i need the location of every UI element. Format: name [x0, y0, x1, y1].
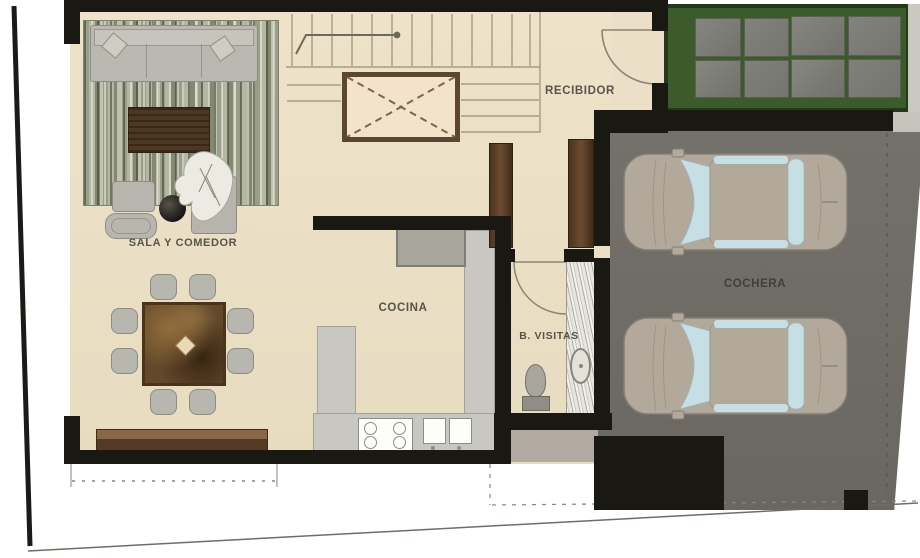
sofa-seat-divider: [201, 44, 202, 78]
paver-tile: [695, 18, 741, 57]
room-label-cocina: COCINA: [357, 302, 449, 314]
wall-segment: [660, 110, 893, 131]
entry-step: [505, 430, 598, 462]
elevator-shaft: [342, 72, 460, 142]
dining-chair: [111, 348, 138, 374]
shaft-x-marks: [347, 77, 455, 137]
burner: [364, 436, 377, 449]
dining-table: [142, 302, 226, 386]
dining-chair: [189, 274, 216, 300]
paver-tile: [791, 16, 845, 56]
wall-segment: [652, 0, 668, 31]
wall-segment: [494, 413, 511, 464]
paver-tile: [848, 59, 902, 99]
wall-segment: [495, 413, 612, 430]
garage-door-opening: [594, 246, 610, 258]
wall-segment: [844, 490, 868, 510]
wall-segment: [594, 436, 724, 510]
sofa: [90, 25, 258, 82]
kitchen-sink-basin: [423, 418, 446, 444]
paver-group: [791, 16, 901, 98]
toilet: [522, 364, 550, 412]
stove: [358, 418, 413, 451]
vanity-sink: [570, 348, 591, 384]
chaise-cushion: [111, 218, 151, 234]
paver-group: [695, 18, 789, 98]
kitchen-counter-left: [317, 326, 356, 415]
refrigerator: [396, 227, 466, 267]
paver-tile: [744, 60, 790, 99]
dining-chair: [227, 308, 254, 334]
armchair: [112, 181, 155, 212]
wall-segment: [64, 0, 80, 44]
room-label-bano-visitas: B. VISITAS: [502, 330, 596, 342]
sofa-seat-divider: [146, 44, 147, 78]
kitchen-sink-basin: [449, 418, 472, 444]
armchair: [191, 176, 237, 234]
paver-tile: [744, 18, 790, 57]
table-centerpiece: [175, 335, 196, 356]
burner: [393, 436, 406, 449]
room-label-cochera: COCHERA: [708, 278, 802, 290]
side-pouf: [159, 195, 186, 222]
burner: [364, 422, 377, 435]
sink-drain: [579, 364, 583, 368]
lawn-right-strip: [908, 4, 920, 112]
toilet-bowl: [525, 364, 546, 397]
wall-segment: [495, 249, 515, 262]
wall-segment: [564, 249, 596, 262]
wall-segment: [64, 450, 510, 464]
floor-plan: SALA Y COMEDOR COCINA RECIBIDOR B. VISIT…: [0, 0, 920, 558]
coffee-table: [128, 107, 210, 153]
room-label-recibidor: RECIBIDOR: [532, 85, 628, 97]
dining-chair: [111, 308, 138, 334]
dining-chair: [189, 389, 216, 415]
paver-tile: [695, 60, 741, 99]
chaise-lounge: [105, 213, 157, 239]
wall-segment: [64, 0, 668, 12]
dining-chair: [150, 389, 177, 415]
paver-tile: [791, 59, 845, 99]
dining-chair: [150, 274, 177, 300]
burner: [393, 422, 406, 435]
toilet-tank: [522, 396, 550, 411]
wall-segment: [313, 216, 511, 230]
paver-tile: [848, 16, 902, 56]
wall-segment: [594, 126, 610, 430]
room-label-sala-y-comedor: SALA Y COMEDOR: [108, 237, 258, 249]
dining-chair: [227, 348, 254, 374]
hall-closet: [568, 139, 594, 248]
kitchen-counter-right: [464, 230, 495, 416]
wall-segment: [64, 416, 80, 464]
